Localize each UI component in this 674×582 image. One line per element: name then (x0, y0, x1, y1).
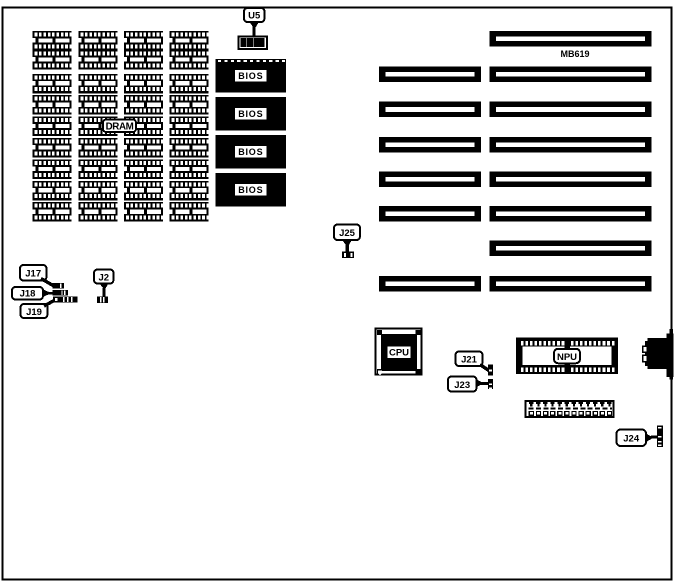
svg-text:NPU: NPU (557, 352, 577, 363)
svg-text:BIOS: BIOS (238, 147, 263, 157)
svg-text:CPU: CPU (389, 348, 409, 359)
svg-text:MB619: MB619 (560, 49, 589, 59)
svg-text:BIOS: BIOS (238, 71, 263, 81)
svg-text:J17: J17 (25, 269, 41, 280)
svg-text:U5: U5 (248, 11, 261, 22)
svg-text:BIOS: BIOS (238, 185, 263, 195)
svg-text:J25: J25 (339, 228, 356, 239)
svg-text:J21: J21 (461, 355, 478, 366)
svg-text:BIOS: BIOS (238, 109, 263, 119)
svg-text:J23: J23 (454, 380, 470, 391)
svg-text:J24: J24 (623, 434, 640, 445)
svg-text:J18: J18 (20, 289, 36, 300)
svg-text:DRAM: DRAM (106, 122, 134, 133)
svg-text:J2: J2 (99, 272, 110, 283)
svg-text:J19: J19 (26, 307, 42, 318)
